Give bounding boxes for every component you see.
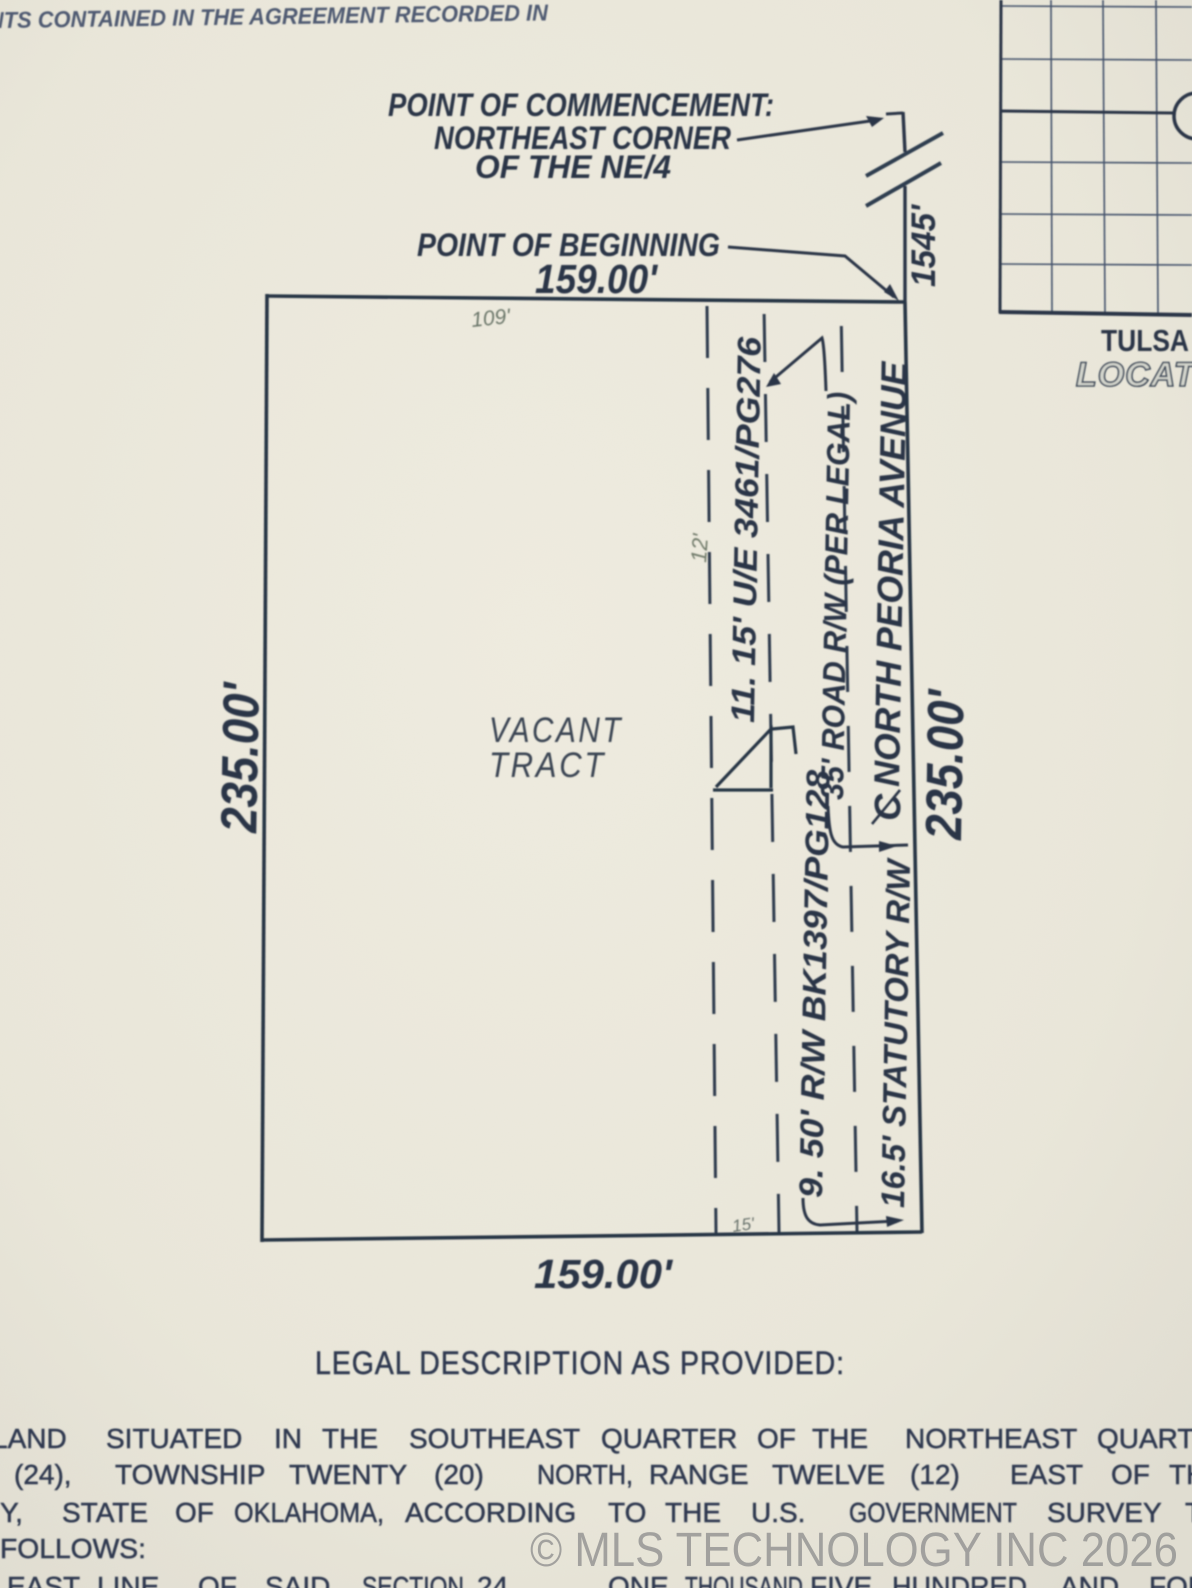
svg-text:1545': 1545' xyxy=(905,203,943,287)
svg-text:9. 50' R/W BK1397/PG128: 9. 50' R/W BK1397/PG128 xyxy=(792,769,836,1198)
svg-text:VACANT: VACANT xyxy=(489,711,623,750)
svg-text:35' ROAD R/W (PER LEGAL): 35' ROAD R/W (PER LEGAL) xyxy=(814,392,857,801)
svg-text:TULSA: TULSA xyxy=(1101,323,1189,358)
svg-text:POINT OF COMMENCEMENT:: POINT OF COMMENCEMENT: xyxy=(388,87,774,123)
svg-text:11. 15' U/E 3461/PG276: 11. 15' U/E 3461/PG276 xyxy=(724,336,768,723)
svg-text:OF THE NE/4: OF THE NE/4 xyxy=(475,149,671,185)
svg-text:16.5' STATUTORY R/W: 16.5' STATUTORY R/W xyxy=(874,857,917,1208)
svg-text:235.00': 235.00' xyxy=(914,687,975,841)
svg-text:159.00': 159.00' xyxy=(535,256,658,302)
svg-text:15': 15' xyxy=(731,1214,756,1236)
svg-text:(24),TOWNSHIPTWENTY(20)NORTH,R: (24),TOWNSHIPTWENTY(20)NORTH,RANGETWELVE… xyxy=(14,1459,1192,1490)
svg-text:NORTH PEORIA AVENUE: NORTH PEORIA AVENUE xyxy=(866,361,914,788)
svg-text:109': 109' xyxy=(470,305,512,332)
svg-text:LEGAL DESCRIPTION AS PROVIDED:: LEGAL DESCRIPTION AS PROVIDED: xyxy=(315,1345,845,1381)
svg-text:159.00': 159.00' xyxy=(534,1251,673,1297)
svg-text:235.00': 235.00' xyxy=(209,680,270,834)
svg-text:12': 12' xyxy=(686,532,713,563)
svg-text:© MLS TECHNOLOGY INC 2026: © MLS TECHNOLOGY INC 2026 xyxy=(530,1524,1178,1577)
svg-text:TRACT: TRACT xyxy=(489,746,606,785)
svg-text:FOLLOWS:: FOLLOWS: xyxy=(0,1533,146,1564)
svg-text:LOCATION: LOCATION xyxy=(1076,356,1192,394)
